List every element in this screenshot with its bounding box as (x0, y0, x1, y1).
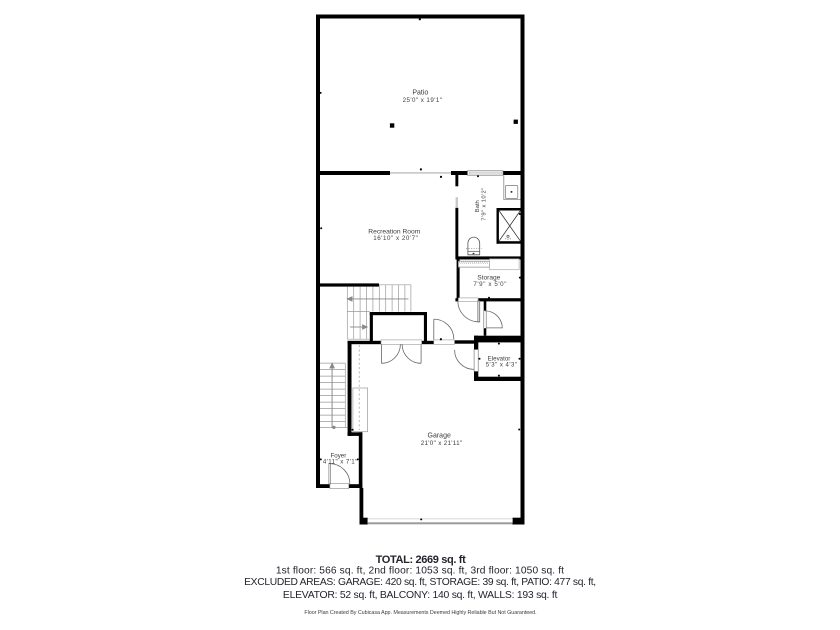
svg-text:16'10" x 20'7": 16'10" x 20'7" (373, 235, 418, 242)
svg-text:ELEVATOR: 52 sq. ft, BALCONY:: ELEVATOR: 52 sq. ft, BALCONY: 140 sq. ft… (283, 590, 558, 601)
svg-text:21'0" x 21'11": 21'0" x 21'11" (421, 440, 463, 447)
svg-text:7'9" x 5'0": 7'9" x 5'0" (473, 281, 507, 288)
svg-text:Bath: Bath (475, 200, 481, 212)
svg-text:Elevator: Elevator (488, 355, 511, 362)
svg-text:4'11" x 7'1": 4'11" x 7'1" (323, 459, 358, 466)
svg-text:EXCLUDED AREAS: GARAGE: 420 sq: EXCLUDED AREAS: GARAGE: 420 sq. ft, STOR… (244, 577, 596, 588)
svg-text:5'3" x 4'3": 5'3" x 4'3" (486, 363, 518, 369)
svg-text:Floor Plan Created By Cubicasa: Floor Plan Created By Cubicasa App. Meas… (304, 610, 536, 616)
svg-text:Garage: Garage (428, 433, 451, 440)
svg-text:1st floor: 566 sq. ft, 2nd flo: 1st floor: 566 sq. ft, 2nd floor: 1053 s… (276, 566, 564, 577)
svg-text:Patio: Patio (412, 90, 428, 97)
svg-text:7'9" x 10'2": 7'9" x 10'2" (482, 187, 488, 220)
svg-text:TOTAL: 2669 sq. ft: TOTAL: 2669 sq. ft (376, 554, 467, 566)
svg-text:25'0" x 19'1": 25'0" x 19'1" (403, 97, 443, 104)
